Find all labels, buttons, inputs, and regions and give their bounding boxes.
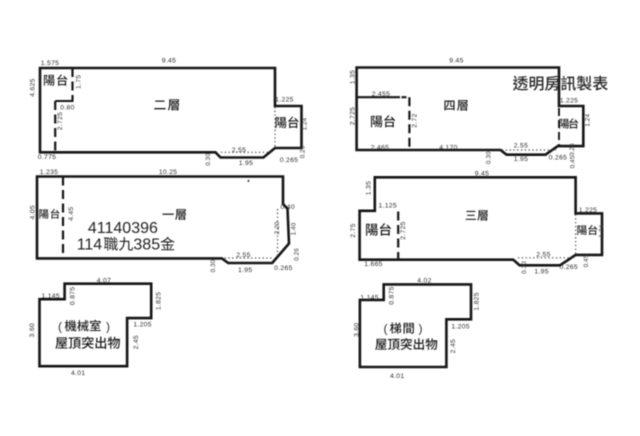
svg-text:0.875: 0.875 [388,286,395,305]
svg-text:2.465: 2.465 [371,144,390,151]
svg-text:1.205: 1.205 [133,322,152,329]
svg-text:0.265: 0.265 [559,264,578,271]
svg-text:(: ( [384,322,388,336]
svg-text:0.80: 0.80 [60,104,74,111]
svg-text:1.95: 1.95 [534,268,548,275]
svg-text:2.20: 2.20 [274,221,281,234]
svg-text:9.45: 9.45 [449,58,463,65]
svg-text:4.07: 4.07 [97,277,111,284]
svg-text:1.40: 1.40 [291,222,298,235]
svg-text:2.55: 2.55 [514,143,528,150]
svg-text:(: ( [58,320,62,334]
svg-text:1.95: 1.95 [238,267,252,274]
svg-text:0.265: 0.265 [274,265,293,272]
svg-text:1.145: 1.145 [41,293,60,300]
svg-text:1.35: 1.35 [349,70,356,84]
svg-text:1.145: 1.145 [360,295,379,302]
svg-text:4.625: 4.625 [29,78,36,97]
svg-text:4.45: 4.45 [68,206,75,220]
svg-text:): ) [419,322,423,336]
svg-text:0.26: 0.26 [300,145,307,158]
svg-text:4.01: 4.01 [390,373,404,380]
svg-text:0.26: 0.26 [569,143,576,156]
svg-text:1.665: 1.665 [364,261,383,268]
svg-text:2.455: 2.455 [372,91,391,98]
svg-text:2.72: 2.72 [411,113,418,127]
svg-text:2.55: 2.55 [232,147,246,154]
svg-text:4.02: 4.02 [417,278,431,285]
svg-text:2.725: 2.725 [349,107,356,126]
svg-text:1.24: 1.24 [585,113,592,126]
svg-text:2.55: 2.55 [536,251,550,258]
svg-text:9.45: 9.45 [162,58,176,65]
svg-text:1.75: 1.75 [76,75,83,89]
svg-text:114: 114 [77,237,103,254]
svg-text:0.30: 0.30 [521,261,528,274]
svg-text:1.825: 1.825 [155,292,162,311]
svg-text:0.30: 0.30 [210,259,217,272]
svg-text:0.30: 0.30 [205,153,212,166]
svg-text:0.45: 0.45 [583,254,590,267]
svg-text:0.875: 0.875 [70,287,77,306]
svg-text:9.45: 9.45 [475,171,489,178]
svg-text:4.01: 4.01 [71,370,85,377]
svg-text:1.825: 1.825 [474,292,481,311]
svg-text:2.75: 2.75 [350,223,357,237]
svg-text:3.60: 3.60 [354,322,361,336]
svg-text:41140396: 41140396 [88,220,158,237]
svg-text:1.95: 1.95 [239,160,253,167]
svg-text:1.24: 1.24 [599,224,606,237]
svg-text:1.205: 1.205 [451,323,470,330]
svg-text:0.265: 0.265 [549,155,568,162]
svg-text:2.55: 2.55 [236,252,250,259]
svg-text:10.25: 10.25 [159,169,178,176]
svg-text:1.125: 1.125 [378,203,397,210]
svg-text:0.265: 0.265 [280,157,299,164]
svg-text:0.40: 0.40 [280,204,294,211]
svg-text:385: 385 [133,237,160,254]
svg-text:0.775: 0.775 [38,154,57,161]
svg-text:4.170: 4.170 [439,145,458,152]
svg-text:1.235: 1.235 [40,169,59,176]
svg-text:0.26: 0.26 [294,248,301,261]
svg-text:1.225: 1.225 [275,97,294,104]
svg-text:2.725: 2.725 [400,221,407,240]
svg-text:1.225: 1.225 [560,98,579,105]
svg-text:1.95: 1.95 [514,156,528,163]
svg-text:0.45: 0.45 [570,155,577,168]
svg-text:0.30: 0.30 [486,151,493,164]
svg-text:): ) [106,320,110,334]
svg-text:2.725: 2.725 [57,112,64,131]
svg-text:4.05: 4.05 [30,205,37,219]
svg-text:1.575: 1.575 [41,60,60,67]
svg-text:1.24: 1.24 [301,117,308,130]
svg-text:3.60: 3.60 [29,323,36,337]
svg-text:2.45: 2.45 [133,335,140,349]
svg-text:1.225: 1.225 [579,207,598,214]
svg-text:1.35: 1.35 [365,181,372,195]
svg-text:2.45: 2.45 [450,339,457,353]
